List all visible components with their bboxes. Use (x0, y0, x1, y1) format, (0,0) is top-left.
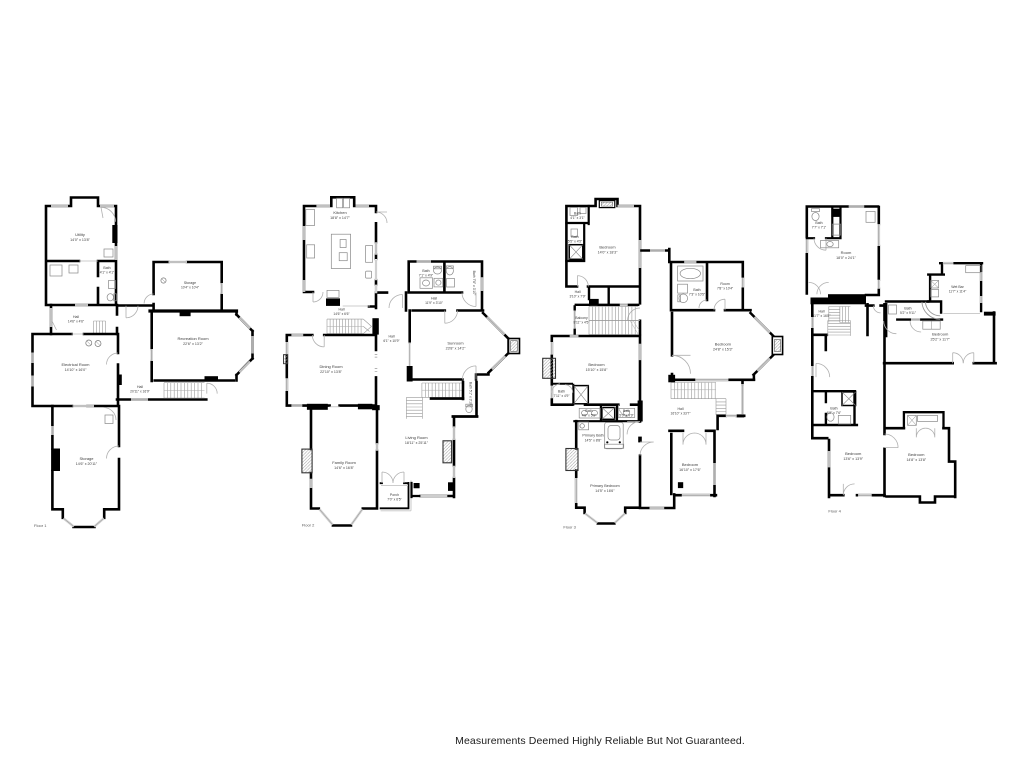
svg-text:Storage: Storage (184, 281, 196, 285)
svg-text:14'8" x 13'8": 14'8" x 13'8" (906, 458, 926, 462)
svg-text:23'8" x 14'2": 23'8" x 14'2" (446, 347, 466, 351)
svg-text:Recreation Room: Recreation Room (177, 336, 209, 341)
svg-text:3'10" x 7'9": 3'10" x 7'9" (569, 295, 586, 299)
svg-text:Living Room: Living Room (405, 435, 428, 440)
svg-text:11'7" x 11'4": 11'7" x 11'4" (949, 290, 967, 294)
svg-text:14'6" x 4'6": 14'6" x 4'6" (68, 320, 85, 324)
svg-text:14'6" x 6'6": 14'6" x 6'6" (333, 312, 350, 316)
svg-text:Room: Room (720, 282, 729, 286)
svg-text:7'0" x 6'5": 7'0" x 6'5" (387, 498, 402, 502)
svg-text:5'5" x 4'5": 5'5" x 4'5" (568, 240, 583, 244)
svg-text:Bath: Bath (571, 235, 578, 239)
svg-text:Wet Bar: Wet Bar (951, 285, 964, 289)
svg-text:Bedroom: Bedroom (599, 245, 616, 250)
svg-text:16'10" x 33'7": 16'10" x 33'7" (671, 412, 692, 416)
svg-text:Bath: Bath (574, 212, 581, 216)
svg-text:5'0" x 4'9": 5'0" x 4'9" (619, 414, 634, 418)
svg-text:Hall: Hall (73, 315, 79, 319)
svg-text:18'11" x 25'11": 18'11" x 25'11" (405, 441, 429, 445)
svg-text:6'1" x 10'9": 6'1" x 10'9" (383, 339, 400, 343)
svg-text:Floor 4: Floor 4 (828, 509, 841, 514)
svg-text:Bedroom: Bedroom (715, 342, 732, 347)
svg-text:Bath: Bath (103, 266, 110, 270)
svg-text:10'4" x 10'4": 10'4" x 10'4" (181, 286, 200, 290)
svg-text:Dining Room: Dining Room (319, 364, 343, 369)
svg-text:14'10" x 16'0": 14'10" x 16'0" (65, 368, 87, 372)
svg-text:7'3" x 10'5": 7'3" x 10'5" (689, 293, 706, 297)
svg-text:Bath: Bath (904, 307, 911, 311)
svg-text:5'2" x 9'11": 5'2" x 9'11" (900, 311, 917, 315)
svg-text:Bath: Bath (830, 407, 837, 411)
svg-text:Bath: Bath (585, 409, 592, 413)
svg-text:11'7" x 16'8": 11'7" x 16'8" (813, 314, 832, 318)
svg-text:14'6" x 16'8": 14'6" x 16'8" (334, 466, 354, 470)
svg-text:Floor 1: Floor 1 (34, 523, 47, 528)
svg-text:Bath: Bath (422, 269, 429, 273)
svg-text:4'1" x 3'1": 4'1" x 3'1" (570, 216, 585, 220)
svg-text:Sunroom: Sunroom (447, 341, 464, 346)
svg-text:14'6" x 20'11": 14'6" x 20'11" (76, 462, 98, 466)
svg-text:Family Room: Family Room (332, 460, 356, 465)
svg-text:Balcony: Balcony (575, 316, 588, 320)
svg-text:Hall: Hall (575, 290, 581, 294)
svg-text:15'10" x 15'8": 15'10" x 15'8" (586, 368, 608, 372)
svg-text:Bath: Bath (815, 221, 822, 225)
svg-text:7'11" x 4'9": 7'11" x 4'9" (553, 394, 570, 398)
svg-text:25'2" x 11'7": 25'2" x 11'7" (930, 338, 950, 342)
svg-text:Utility: Utility (75, 232, 85, 237)
svg-text:7'1" x 4'9": 7'1" x 4'9" (419, 274, 434, 278)
svg-text:Bedroom: Bedroom (588, 362, 605, 367)
svg-text:4'1" x 4'1": 4'1" x 4'1" (100, 271, 115, 275)
svg-text:Kitchen: Kitchen (333, 210, 346, 215)
svg-text:Hall: Hall (388, 335, 394, 339)
svg-text:Porch: Porch (390, 493, 399, 497)
svg-text:Bath: Bath (693, 288, 700, 292)
svg-text:Hall: Hall (677, 407, 683, 411)
svg-text:13'6" x 13'9": 13'6" x 13'9" (843, 457, 863, 461)
svg-text:Bedroom: Bedroom (908, 452, 925, 457)
svg-text:22'6" x 13'2": 22'6" x 13'2" (183, 342, 203, 346)
svg-text:4'8" x 5'5": 4'8" x 5'5" (582, 414, 597, 418)
svg-text:20'11" x 16'9": 20'11" x 16'9" (130, 390, 150, 394)
svg-text:14'5" x 8'8": 14'5" x 8'8" (585, 438, 603, 442)
svg-text:Floor 2: Floor 2 (302, 523, 315, 528)
svg-text:Bath: Bath (558, 390, 565, 394)
svg-text:Electrical Room: Electrical Room (61, 362, 90, 367)
svg-text:Bedroom: Bedroom (845, 451, 862, 456)
svg-text:Hall: Hall (338, 308, 344, 312)
svg-text:22'10" x 13'8": 22'10" x 13'8" (320, 370, 342, 374)
svg-text:18'0" x 24'1": 18'0" x 24'1" (836, 256, 856, 260)
svg-text:7'7" x 7'1": 7'7" x 7'1" (812, 226, 827, 230)
svg-text:11'9" x 3'10": 11'9" x 3'10" (425, 301, 444, 305)
svg-text:Bedroom: Bedroom (682, 462, 699, 467)
svg-text:Bath 5'1" x 3'10": Bath 5'1" x 3'10" (469, 382, 473, 407)
svg-text:18'8" x 14'7": 18'8" x 14'7" (330, 216, 350, 220)
svg-text:Storage: Storage (79, 456, 94, 461)
svg-text:Primary Bath: Primary Bath (582, 434, 603, 438)
svg-text:Primary Bedroom: Primary Bedroom (590, 484, 620, 488)
svg-text:14'5" x 16'6": 14'5" x 16'6" (595, 489, 615, 493)
svg-text:14'0" x 13'8": 14'0" x 13'8" (70, 238, 90, 242)
svg-text:Hall: Hall (431, 297, 437, 301)
svg-text:Bedroom: Bedroom (932, 332, 949, 337)
svg-text:Bath 7'8" x 3'10": Bath 7'8" x 3'10" (472, 271, 476, 296)
svg-text:Hall: Hall (137, 385, 143, 389)
svg-text:7'8" x 10'4": 7'8" x 10'4" (717, 287, 734, 291)
svg-text:8'11" x 4'5": 8'11" x 4'5" (573, 321, 590, 325)
svg-text:16'10" x 17'6": 16'10" x 17'6" (679, 468, 701, 472)
svg-text:Bath: Bath (623, 409, 630, 413)
svg-text:Floor 3: Floor 3 (563, 525, 576, 530)
svg-text:24'8" x 15'3": 24'8" x 15'3" (713, 348, 733, 352)
svg-text:6'8" x 7'6": 6'8" x 7'6" (827, 411, 842, 415)
svg-text:Room: Room (841, 250, 852, 255)
svg-text:14'0" x 18'3": 14'0" x 18'3" (598, 251, 618, 255)
svg-text:Hall: Hall (818, 310, 824, 314)
